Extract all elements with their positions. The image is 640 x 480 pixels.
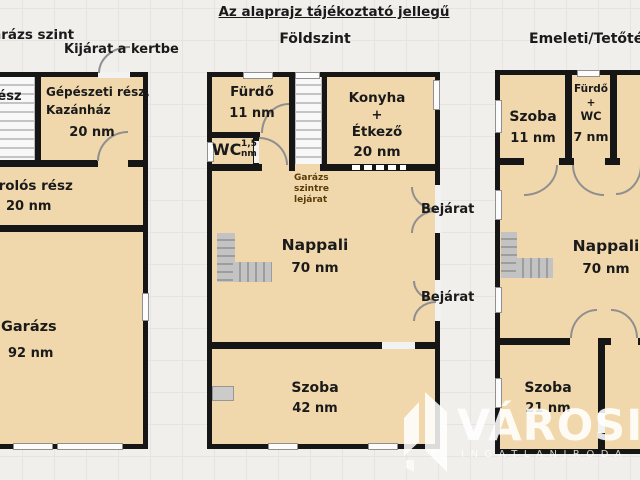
staircase	[295, 77, 322, 164]
stairs-note-line3: lejárat	[294, 195, 327, 205]
room-area-kitchen: 20 nm	[337, 145, 417, 161]
closet-box	[212, 386, 234, 401]
garden-exit-label: Kijárat a kertbe	[64, 43, 179, 58]
window	[433, 80, 440, 110]
room-area-bath: 11 nm	[217, 107, 287, 122]
room-label-mechanical-line1: Gépészeti rész,	[46, 86, 150, 100]
window	[295, 72, 320, 79]
wall	[0, 225, 148, 232]
staircase	[501, 232, 517, 278]
page-title: Az alaprajz tájékoztató jellegű	[204, 5, 464, 21]
door-opening	[524, 158, 559, 165]
wall	[495, 158, 640, 165]
room-area-living: 70 nm	[285, 261, 345, 277]
window	[142, 293, 149, 321]
room-area-bedroom: 42 nm	[284, 402, 346, 417]
wall	[565, 72, 572, 165]
entrance-label-bottom: Bejárat	[421, 291, 474, 306]
window	[495, 190, 502, 220]
window	[57, 443, 123, 450]
door-opening	[574, 158, 605, 165]
room-label-bedroom-bottom: Szoba	[518, 380, 578, 396]
room-area-bathwc: 7 nm	[572, 130, 610, 144]
floorplan-canvas: Az alaprajz tájékoztató jellegű Garázs s…	[0, 0, 640, 480]
room-label-bathwc-line3: WC	[572, 110, 610, 123]
room-label-wc: WC	[212, 141, 241, 159]
room-area-mechanical: 20 nm	[60, 126, 124, 141]
room-label-garage: Garázs	[1, 319, 57, 336]
room-area-garage: 92 nm	[8, 347, 53, 362]
room-label-bath: Fürdő	[217, 85, 287, 101]
window	[495, 378, 502, 408]
stairs-note-line2: szintre	[294, 184, 329, 194]
room-area-bedroom-top: 11 nm	[500, 132, 566, 147]
room-label-mechanical-line2: Kazánház	[46, 104, 111, 118]
window	[368, 443, 398, 450]
entrance-label-top: Bejárat	[421, 203, 474, 218]
room-label-bathwc-line1: Fürdő	[572, 83, 610, 95]
room-area-living-upper: 70 nm	[575, 262, 637, 278]
wall-opening	[382, 342, 415, 349]
room-label-kitchen-line2: +	[337, 109, 417, 124]
door-opening	[620, 158, 640, 165]
stairs-note-line1: Garázs	[294, 173, 329, 183]
room-area-wc-unit: nm	[241, 149, 257, 159]
room-label-living: Nappali	[275, 237, 355, 255]
window	[577, 70, 600, 77]
staircase	[516, 258, 553, 278]
room-label-storage: Tárolós rész	[0, 179, 73, 195]
room-label-bedroom-top: Szoba	[500, 109, 566, 125]
door-opening	[570, 338, 598, 345]
door-opening	[611, 338, 638, 345]
room-label-bedroom: Szoba	[284, 380, 346, 396]
window	[243, 72, 273, 79]
wall	[598, 345, 605, 454]
room-label-kitchen-line3: Étkező	[337, 125, 417, 141]
floor-label-ground: Földszint	[270, 31, 360, 47]
wall	[610, 72, 617, 165]
sliding-door	[352, 165, 406, 170]
door-opening	[98, 160, 128, 167]
staircase	[233, 262, 272, 282]
room-label-bathwc-line2: +	[572, 97, 610, 109]
room-label-stair-part: rész	[0, 90, 22, 105]
room-label-kitchen-line1: Konyha	[337, 91, 417, 107]
window	[13, 443, 53, 450]
window	[495, 287, 502, 313]
room-area-storage: 20 nm	[6, 200, 51, 215]
room-area-bedroom-bottom: 21 nm	[518, 402, 578, 417]
room-label-living-upper: Nappali	[565, 238, 640, 256]
door-opening	[598, 413, 605, 433]
window	[268, 443, 298, 450]
floor-label-upper: Emeleti/Tetőtér	[529, 31, 640, 47]
room-area-wc-value: 1,5	[241, 139, 257, 149]
